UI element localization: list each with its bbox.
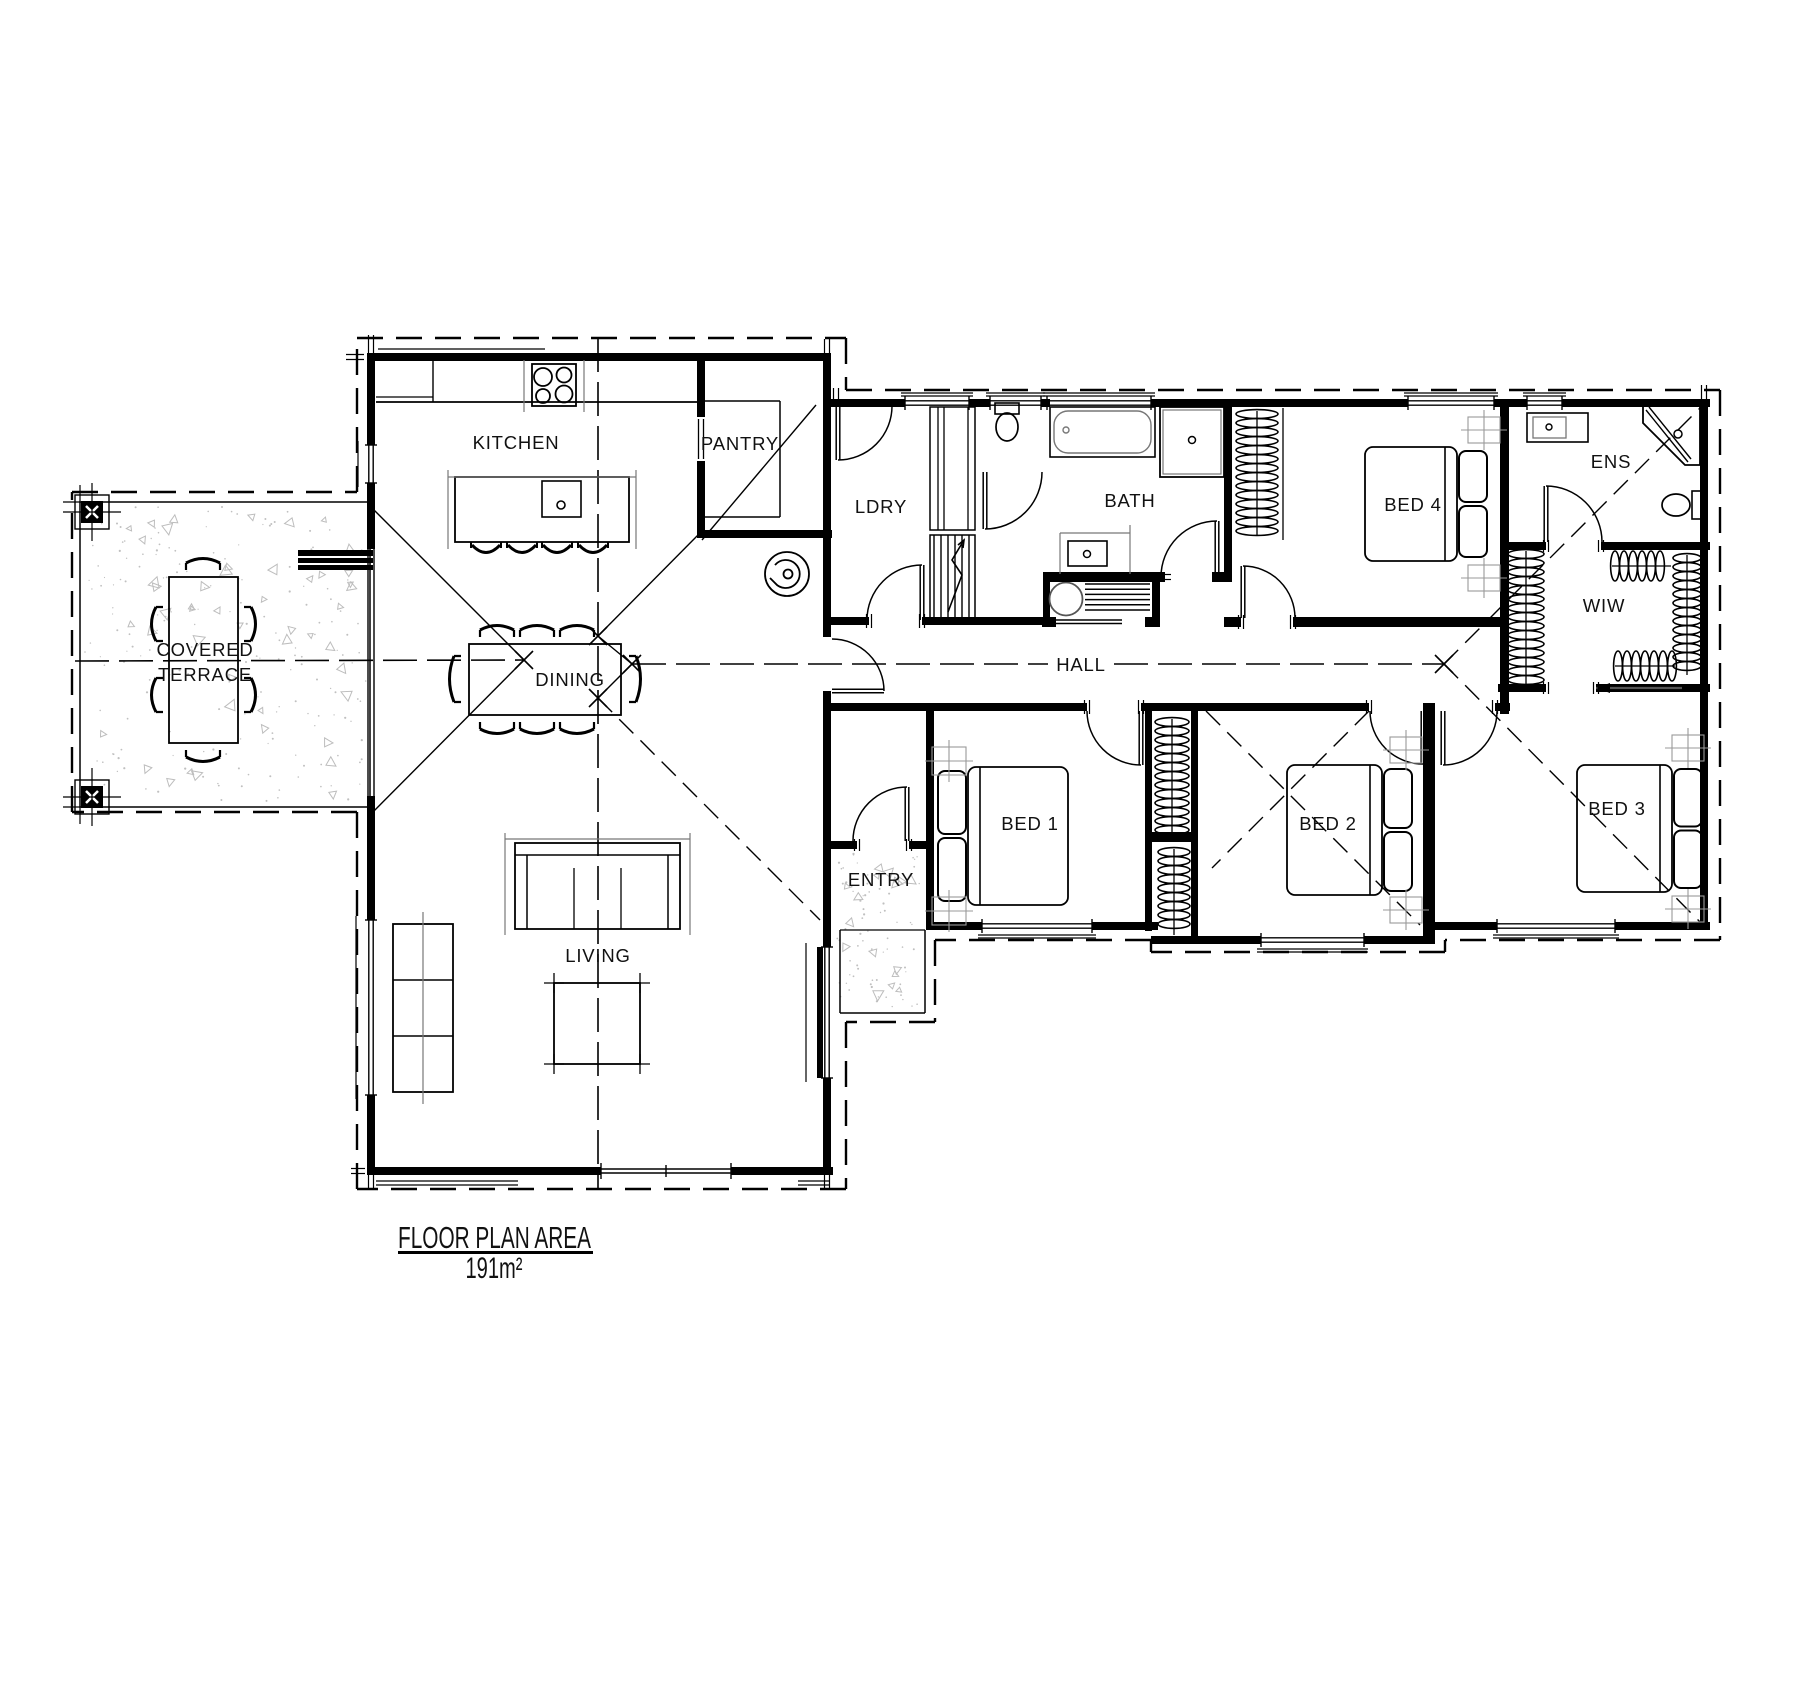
svg-text:TERRACE: TERRACE bbox=[158, 664, 252, 685]
svg-text:DINING: DINING bbox=[535, 669, 605, 690]
svg-text:ENTRY: ENTRY bbox=[848, 869, 914, 890]
svg-text:WIW: WIW bbox=[1583, 595, 1625, 616]
svg-text:FLOOR PLAN AREA: FLOOR PLAN AREA bbox=[398, 1221, 591, 1255]
svg-text:BED 3: BED 3 bbox=[1588, 798, 1645, 819]
svg-text:BATH: BATH bbox=[1104, 490, 1155, 511]
svg-text:PANTRY: PANTRY bbox=[701, 433, 779, 454]
svg-text:BED 1: BED 1 bbox=[1001, 813, 1058, 834]
svg-text:ENS: ENS bbox=[1591, 451, 1631, 472]
svg-text:BED 2: BED 2 bbox=[1299, 813, 1356, 834]
svg-text:LIVING: LIVING bbox=[565, 945, 630, 966]
svg-text:BED 4: BED 4 bbox=[1384, 494, 1441, 515]
svg-text:LDRY: LDRY bbox=[855, 496, 907, 517]
svg-text:191m²: 191m² bbox=[466, 1252, 523, 1285]
svg-text:KITCHEN: KITCHEN bbox=[473, 432, 560, 453]
svg-text:HALL: HALL bbox=[1056, 654, 1105, 675]
svg-text:COVERED: COVERED bbox=[156, 639, 253, 660]
